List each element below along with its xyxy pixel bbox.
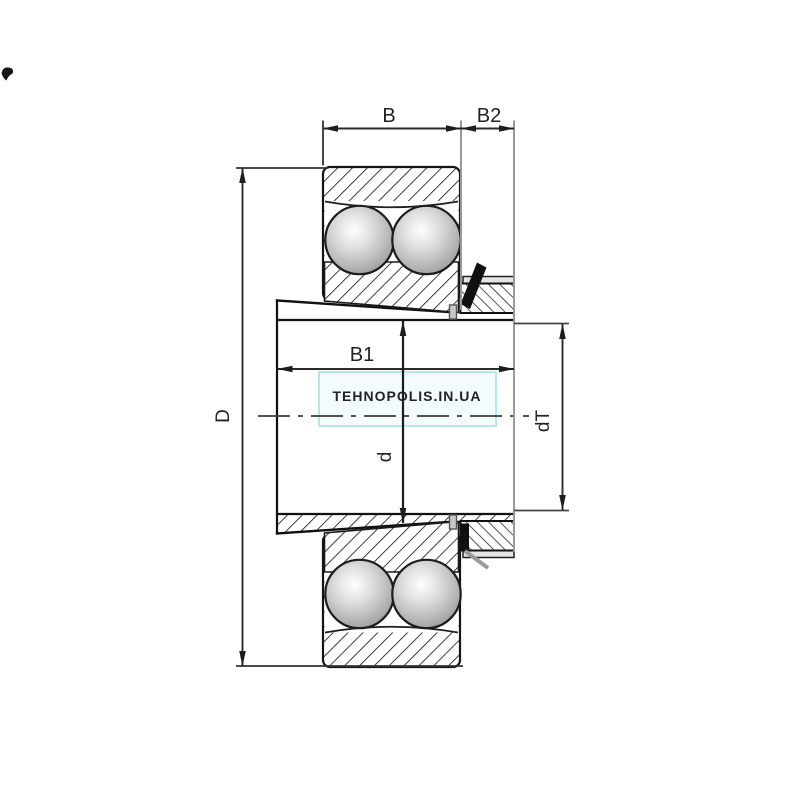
cursor-artifact xyxy=(2,67,14,80)
ball-bottom-left xyxy=(325,560,393,628)
ball-bottom-right xyxy=(392,560,460,628)
ball-top-right xyxy=(392,206,460,274)
bearing-top-half xyxy=(323,167,461,313)
dim-label-D: D xyxy=(213,409,234,423)
lock-washer-tab-bottom xyxy=(460,524,470,550)
dim-label-dT: dT xyxy=(533,410,554,433)
ball-top-left xyxy=(325,206,393,274)
dim-label-b2: B2 xyxy=(477,105,501,127)
dim-label-b1: B1 xyxy=(350,344,374,366)
bearing-cross-section-diagram: TEHNOPOLIS.IN.UA xyxy=(0,0,800,800)
bearing-drawing-page: TEHNOPOLIS.IN.UA xyxy=(0,0,800,800)
lock-washer-step-top xyxy=(450,305,457,319)
watermark-text: TEHNOPOLIS.IN.UA xyxy=(332,388,481,404)
lock-washer-step-bottom xyxy=(450,515,457,529)
dim-label-b: B xyxy=(382,105,395,127)
watermark: TEHNOPOLIS.IN.UA xyxy=(319,372,496,426)
dim-label-d: d xyxy=(375,452,396,463)
bearing-bottom-half xyxy=(323,522,461,668)
